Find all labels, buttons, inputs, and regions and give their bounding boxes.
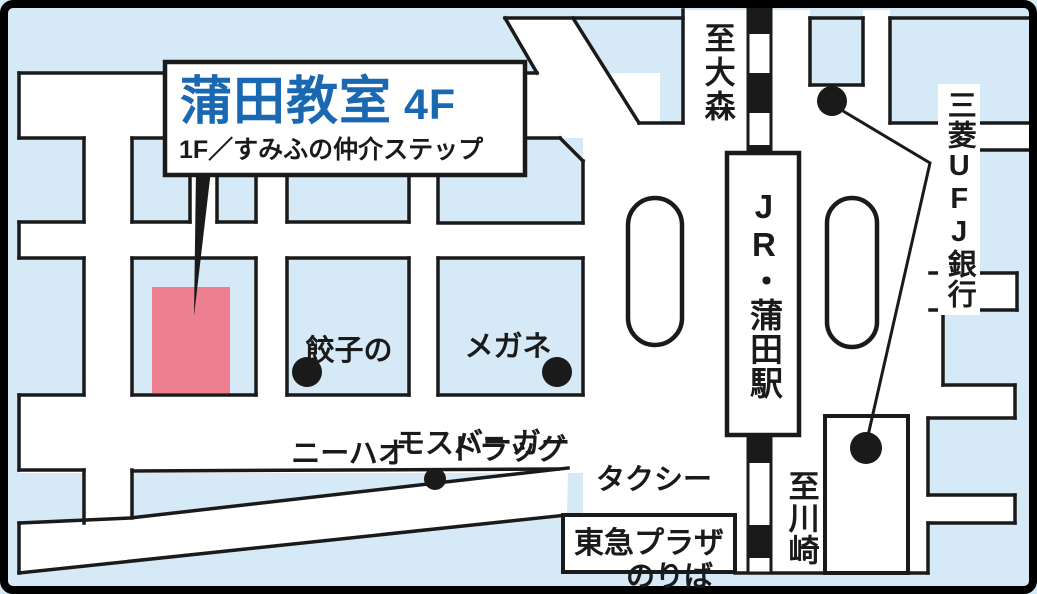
landmark-label-mufg-bank: 三菱UFJ銀行: [938, 84, 980, 315]
direction-label-north: 至大森: [698, 22, 735, 124]
station-name: JR・蒲田駅: [744, 188, 783, 400]
gyoza-line2: ニーハオ: [285, 437, 413, 471]
megane-line1: メガネ: [436, 330, 580, 364]
poi-dot-bank-north: [817, 86, 847, 116]
taxi-line1: タクシー: [596, 464, 713, 496]
classroom-location-marker: [152, 287, 230, 393]
station-label: JR・蒲田駅: [727, 153, 799, 435]
classroom-subtitle: 1F／すみふの仲介ステップ: [179, 136, 483, 166]
poi-dot-bank-south: [850, 432, 882, 464]
gyoza-line1: 餃子の: [285, 334, 413, 368]
rotary-oval-left: [628, 198, 682, 345]
landmark-label-megane: メガネ ドラッグ: [436, 262, 580, 536]
railway-line-north: [748, 6, 771, 153]
classroom-title-name: 蒲田教室: [180, 73, 392, 131]
railway-line-south: [748, 433, 771, 573]
landmark-label-tokyu-plaza: 東急プラザ: [563, 515, 735, 572]
access-map: 蒲田教室4F 1F／すみふの仲介ステップ 餃子の ニーハオ メガネ ドラッグ モ…: [0, 0, 1037, 594]
rotary-oval-right: [827, 198, 877, 347]
landmark-label-gyoza: 餃子の ニーハオ: [285, 266, 413, 540]
classroom-title-floor: 4F: [404, 81, 456, 129]
classroom-title: 蒲田教室4F: [180, 72, 456, 133]
direction-label-south: 至川崎: [782, 470, 819, 566]
landmark-label-mos-burger: モスバーガー: [396, 427, 570, 461]
